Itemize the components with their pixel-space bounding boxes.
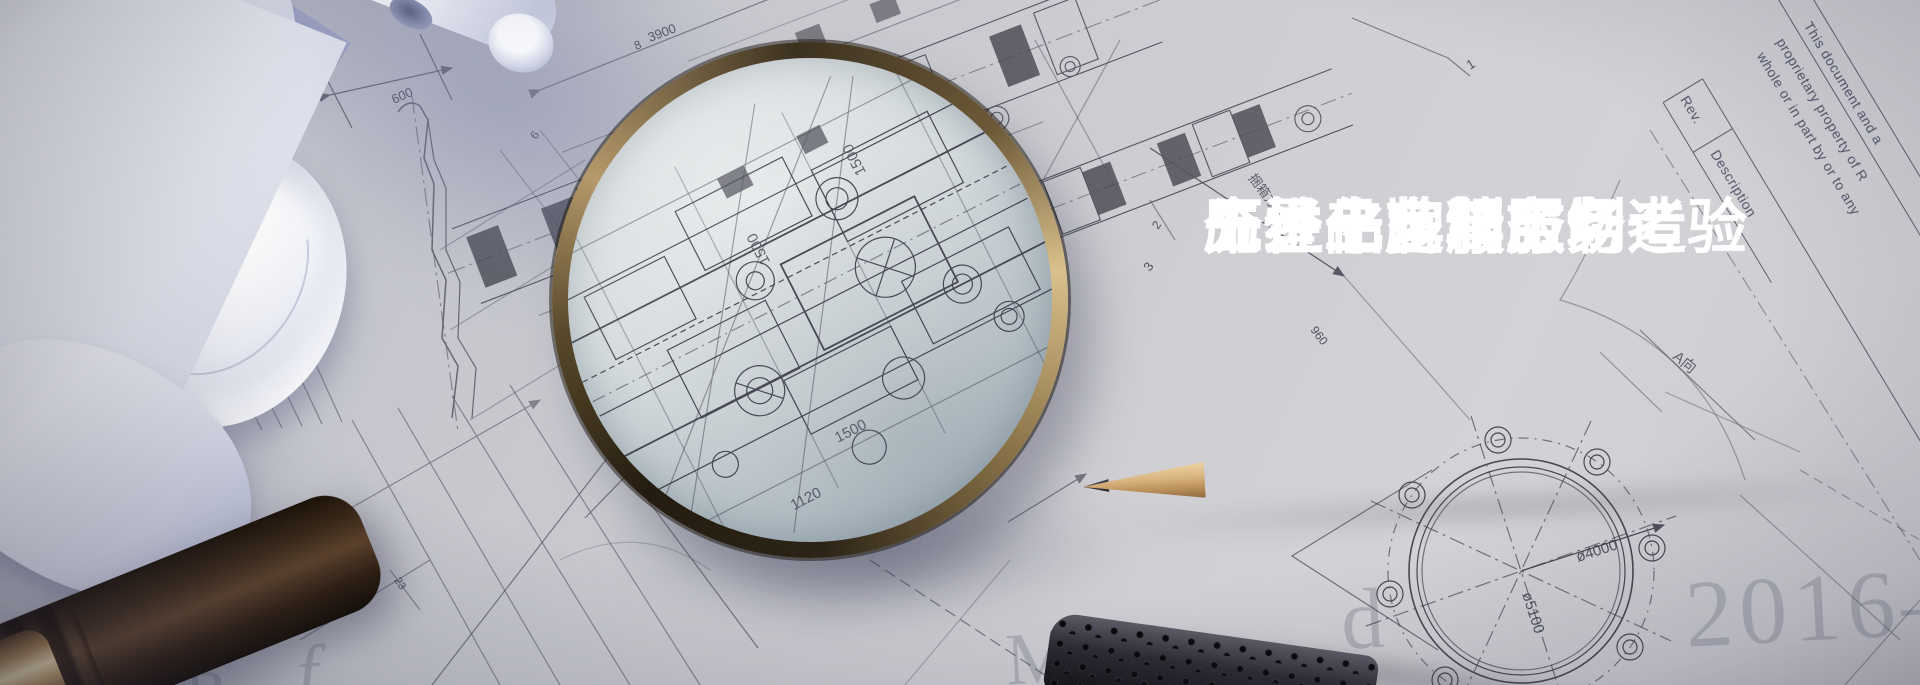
hero-banner: B f M0 d 2016— xyxy=(0,0,1920,685)
svg-text:B: B xyxy=(183,656,229,685)
svg-text:Rev.: Rev. xyxy=(1677,93,1706,127)
svg-text:23: 23 xyxy=(391,575,408,592)
svg-text:8: 8 xyxy=(632,37,644,53)
svg-text:f: f xyxy=(294,628,330,685)
svg-text:ø4000: ø4000 xyxy=(1574,536,1620,565)
hero-line-4: 五星品牌服务 xyxy=(1203,182,1566,274)
svg-text:ø5100: ø5100 xyxy=(1518,590,1547,636)
svg-text:960: 960 xyxy=(1308,323,1331,348)
svg-text:10: 10 xyxy=(1043,329,1062,348)
svg-text:1: 1 xyxy=(1464,56,1478,73)
pencil-sharpened-cone xyxy=(1082,462,1206,505)
svg-text:2016—: 2016— xyxy=(1682,544,1920,667)
svg-text:3: 3 xyxy=(1140,259,1156,274)
svg-text:A向: A向 xyxy=(1669,348,1699,377)
svg-text:4: 4 xyxy=(936,439,952,454)
